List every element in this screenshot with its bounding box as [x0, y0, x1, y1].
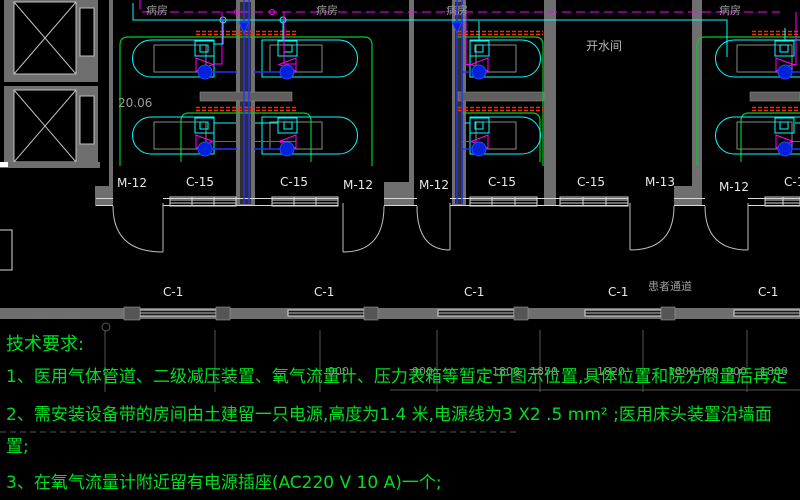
- ward-room-label: 病房: [316, 5, 338, 16]
- door-window-tag: M-12: [419, 179, 449, 191]
- notes-line-2-wrap: 置;: [6, 432, 29, 457]
- notes-title: 技术要求:: [6, 330, 84, 356]
- door-window-tag: M-12: [719, 181, 749, 193]
- elevation-label: 20.06: [118, 97, 152, 109]
- notes-line-2: 2、需安装设备带的房间由土建留一只电源,高度为1.4 米,电源线为3 X2 .5…: [6, 400, 772, 425]
- corridor-window-tag: C-1: [608, 286, 628, 298]
- corridor-top-wall: [96, 197, 800, 252]
- corridor-name-label: 患者通道: [648, 281, 692, 292]
- gas-pipe-branches: [212, 12, 800, 149]
- door-window-tag: M-12: [343, 179, 373, 191]
- door-window-tag: C-15: [280, 176, 308, 188]
- gas-pipes-main: [133, 0, 780, 204]
- hot-water-room-label: 开水间: [586, 40, 622, 52]
- corridor-window-tag: C-1: [758, 286, 778, 298]
- door-window-tag: M-13: [645, 176, 675, 188]
- corridor-window-tag: C-1: [464, 286, 484, 298]
- notes-line-3: 3、在氧气流量计附近留有电源插座(AC220 V 10 A)一个;: [6, 468, 442, 493]
- elevator-shafts: [0, 0, 100, 168]
- door-window-tag: M-12: [117, 177, 147, 189]
- floor-plan-drawing: [0, 0, 800, 500]
- corridor-window-tag: C-1: [314, 286, 334, 298]
- door-window-tag: C-15: [577, 176, 605, 188]
- cad-floor-plan-canvas: 20.06 开水间 患者通道 技术要求: 1、医用气体管道、二级减压装置、氧气流…: [0, 0, 800, 500]
- corridor-bottom-wall: [0, 230, 800, 320]
- ward-room-label: 病房: [146, 5, 168, 16]
- door-window-tag: C-1: [784, 176, 800, 188]
- door-swings: [113, 203, 748, 252]
- corridor-window-tag: C-1: [163, 286, 183, 298]
- ward-room-label: 病房: [446, 5, 468, 16]
- notes-line-1: 1、医用气体管道、二级减压装置、氧气流量计、压力表箱等暂定于图示位置,具体位置和…: [6, 362, 787, 387]
- door-window-tag: C-15: [186, 176, 214, 188]
- ward-room-label: 病房: [719, 5, 741, 16]
- door-window-tag: C-15: [488, 176, 516, 188]
